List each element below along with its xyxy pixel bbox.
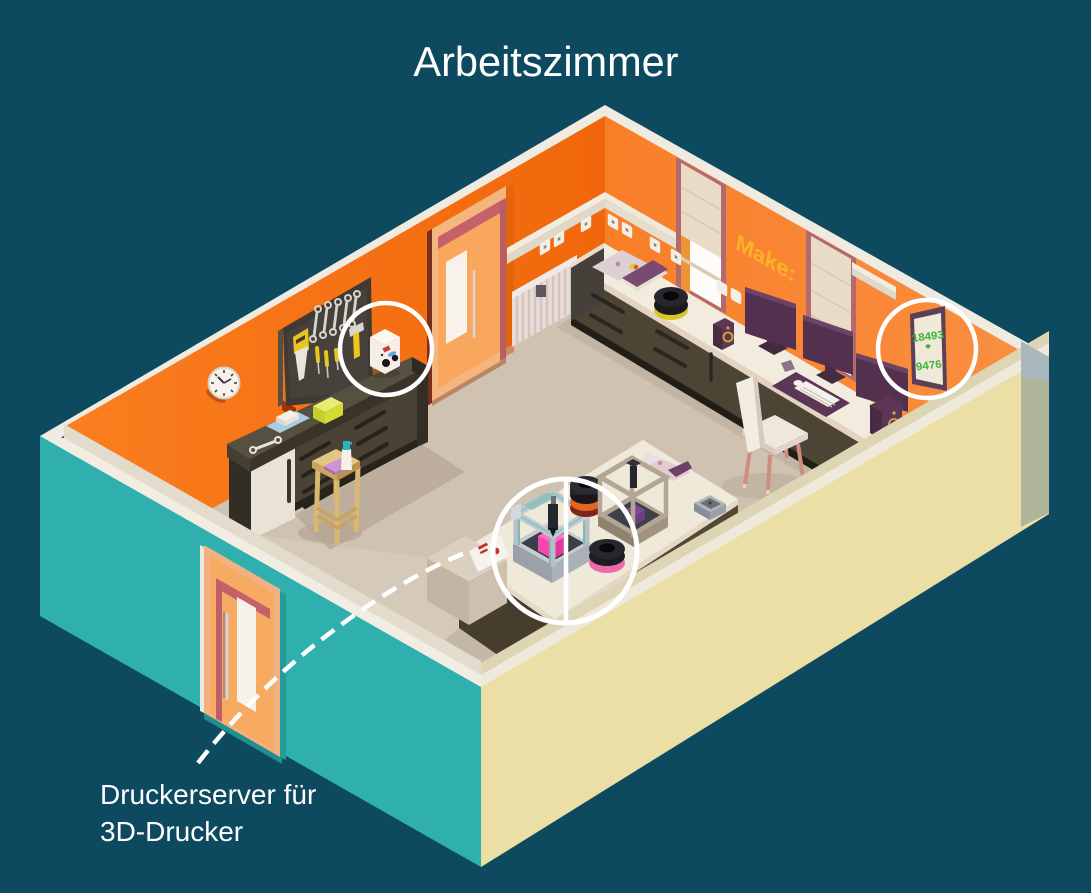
svg-text:Arbeitszimmer: Arbeitszimmer [413, 38, 678, 85]
svg-text:3D-Drucker: 3D-Drucker [100, 816, 243, 847]
svg-text:Druckerserver für: Druckerserver für [100, 779, 316, 810]
